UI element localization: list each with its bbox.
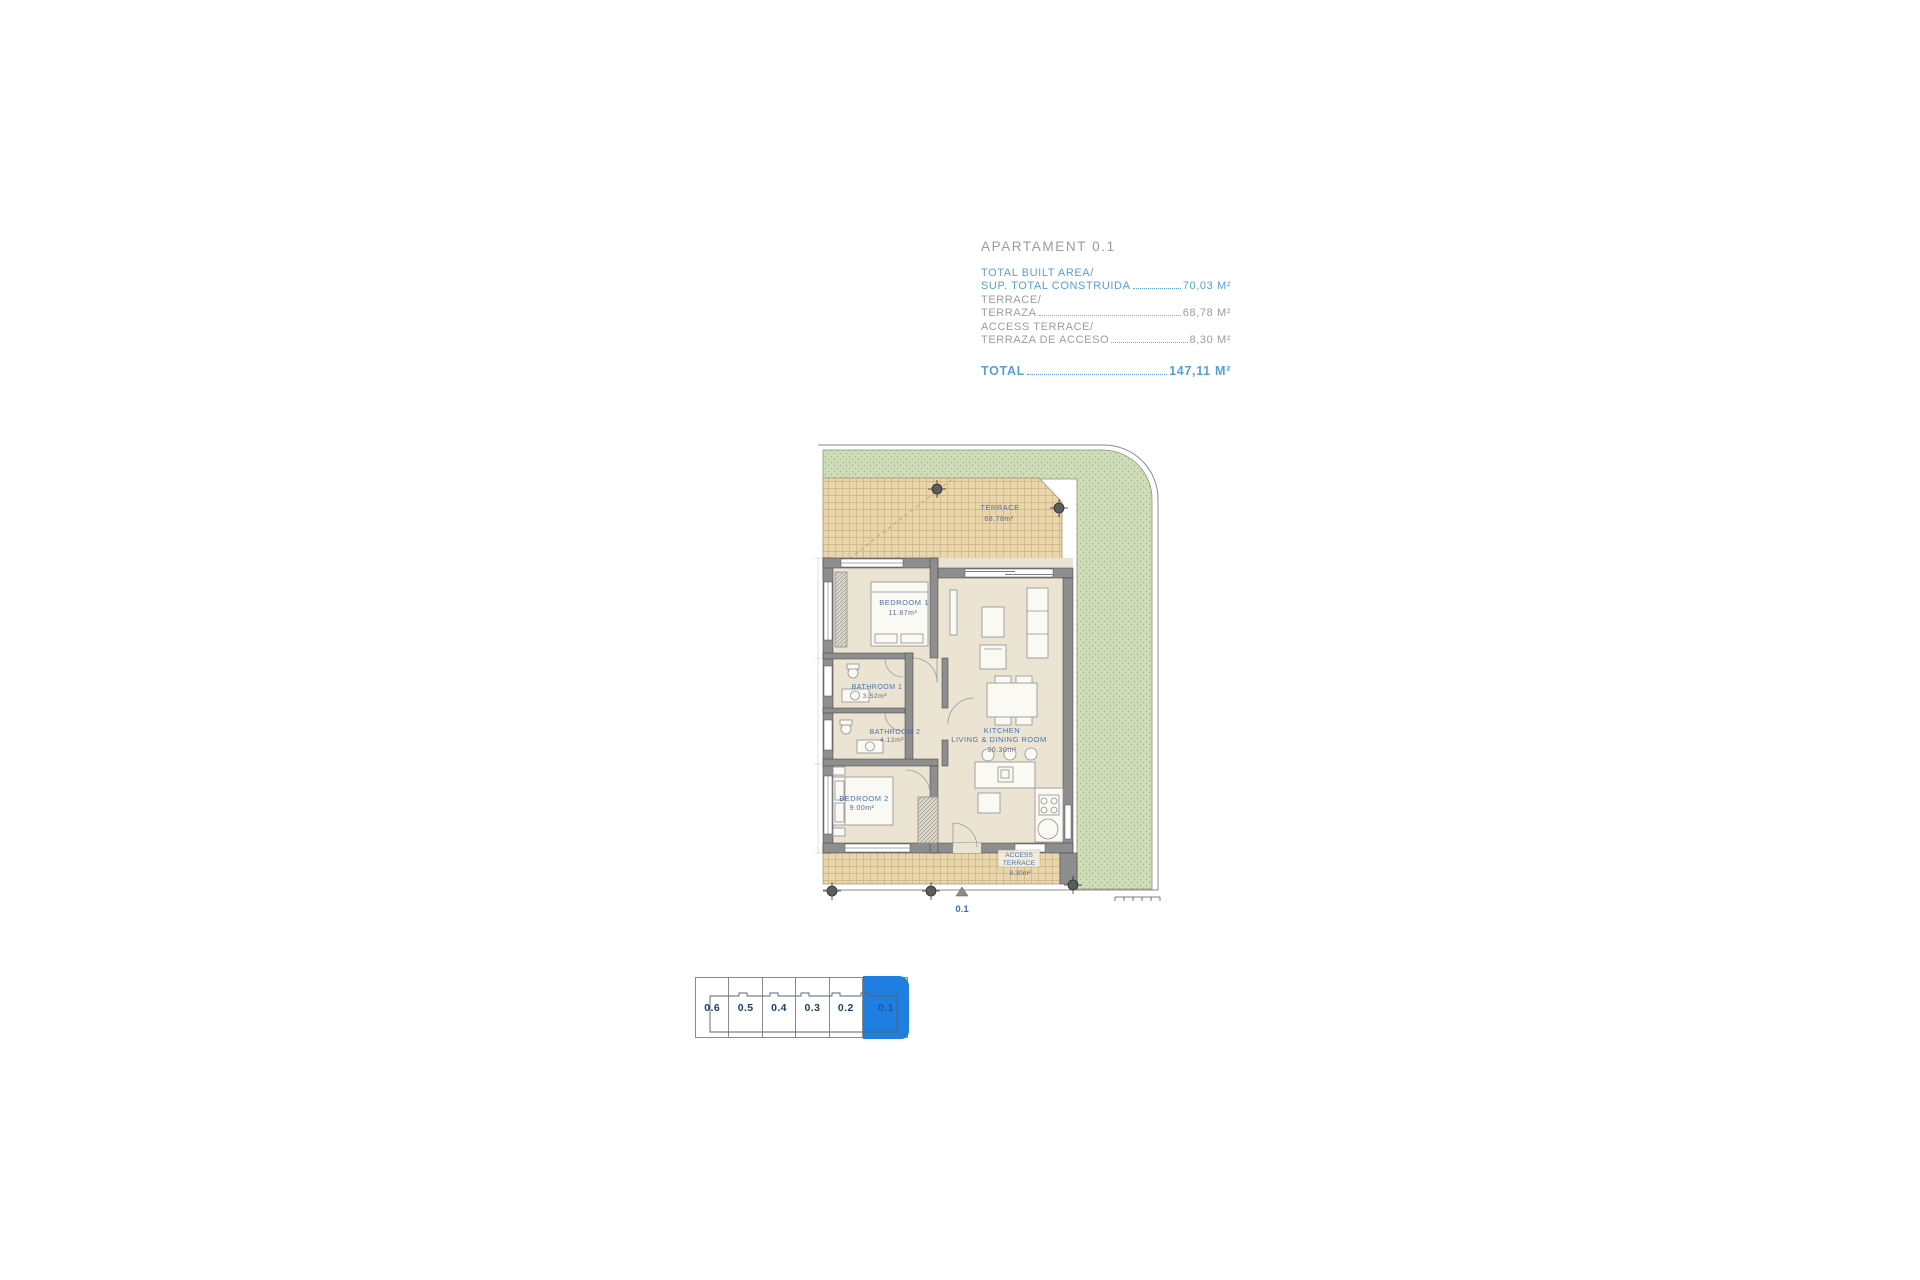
apartment-info-panel: APARTAMENT 0.1 TOTAL BUILT AREA/ SUP. TO… <box>981 239 1231 378</box>
bathroom2-label: BATHROOM 2 <box>870 729 921 736</box>
unit-tab-02[interactable]: 0.2 <box>830 978 863 1037</box>
floor-plan-svg: TERRACE 68.78m² BEDROOM 1 11.87m² BATHRO… <box>815 440 1165 920</box>
area-label-es: TERRAZA <box>981 307 1037 320</box>
total-label: TOTAL <box>981 364 1025 378</box>
area-row-terrace: TERRACE/ TERRAZA 68,78 M² <box>981 294 1231 320</box>
area-label-es: SUP. TOTAL CONSTRUIDA <box>981 280 1131 293</box>
access-terrace-label2: TERRACE <box>1003 860 1036 867</box>
entry-unit-label: 0.1 <box>955 904 969 915</box>
bathroom1-label: BATHROOM 1 <box>852 684 903 691</box>
bedroom2-label: BEDROOM 2 <box>839 794 889 803</box>
area-value: 8,30 M² <box>1190 334 1232 347</box>
area-row-access-terrace: ACCESS TERRACE/ TERRAZA DE ACCESO 8,30 M… <box>981 321 1231 347</box>
terrace-label: TERRACE <box>980 503 1019 512</box>
access-terrace-area-label: 8.30m² <box>1009 870 1031 877</box>
total-value: 147,11 M² <box>1169 364 1231 378</box>
entry-marker: 0.1 <box>955 887 969 915</box>
area-label-es: TERRAZA DE ACCESO <box>981 334 1109 347</box>
kitchen-label: KITCHEN <box>984 726 1020 735</box>
unit-selector: 0.6 0.5 0.4 0.3 0.2 0.1 <box>695 977 908 1038</box>
kitchen-area-label: 30.30m² <box>987 747 1016 754</box>
terrace-area-label: 68.78m² <box>984 516 1013 523</box>
bedroom1-area-label: 11.87m² <box>889 610 918 617</box>
scale-ruler <box>1115 897 1160 901</box>
dimension-line <box>815 558 821 853</box>
bedroom2-area-label: 9.00m² <box>850 805 875 812</box>
dot-leader <box>1133 288 1181 289</box>
access-terrace-label: ACCESS <box>1005 852 1033 859</box>
unit-tab-03[interactable]: 0.3 <box>796 978 829 1037</box>
unit-selector-cells: 0.6 0.5 0.4 0.3 0.2 0.1 <box>695 977 908 1038</box>
area-label-en: TOTAL BUILT AREA/ <box>981 267 1231 280</box>
dot-leader <box>1111 342 1187 343</box>
bedroom1-label: BEDROOM 1 <box>879 598 929 607</box>
dot-leader <box>1027 374 1167 375</box>
entry-arrow-icon <box>956 887 968 896</box>
dot-leader <box>1039 315 1181 316</box>
bathroom1-area-label: 3.52m² <box>863 693 887 700</box>
unit-tab-01-selected[interactable]: 0.1 <box>863 976 909 1039</box>
area-label-en: TERRACE/ <box>981 294 1231 307</box>
kitchen-label2: LIVING & DINING ROOM <box>951 735 1046 744</box>
unit-tab-04[interactable]: 0.4 <box>763 978 796 1037</box>
floor-plan: TERRACE 68.78m² BEDROOM 1 11.87m² BATHRO… <box>815 440 1165 920</box>
page-title: APARTAMENT 0.1 <box>981 239 1231 254</box>
area-row-built: TOTAL BUILT AREA/ SUP. TOTAL CONSTRUIDA … <box>981 267 1231 293</box>
area-label-en: ACCESS TERRACE/ <box>981 321 1231 334</box>
unit-tab-05[interactable]: 0.5 <box>729 978 762 1037</box>
bathroom2-area-label: 4.12m² <box>880 737 904 744</box>
area-value: 70,03 M² <box>1183 280 1231 293</box>
unit-tab-06[interactable]: 0.6 <box>696 978 729 1037</box>
area-value: 68,78 M² <box>1183 307 1231 320</box>
page: APARTAMENT 0.1 TOTAL BUILT AREA/ SUP. TO… <box>0 0 1920 1280</box>
total-row: TOTAL 147,11 M² <box>981 364 1231 378</box>
